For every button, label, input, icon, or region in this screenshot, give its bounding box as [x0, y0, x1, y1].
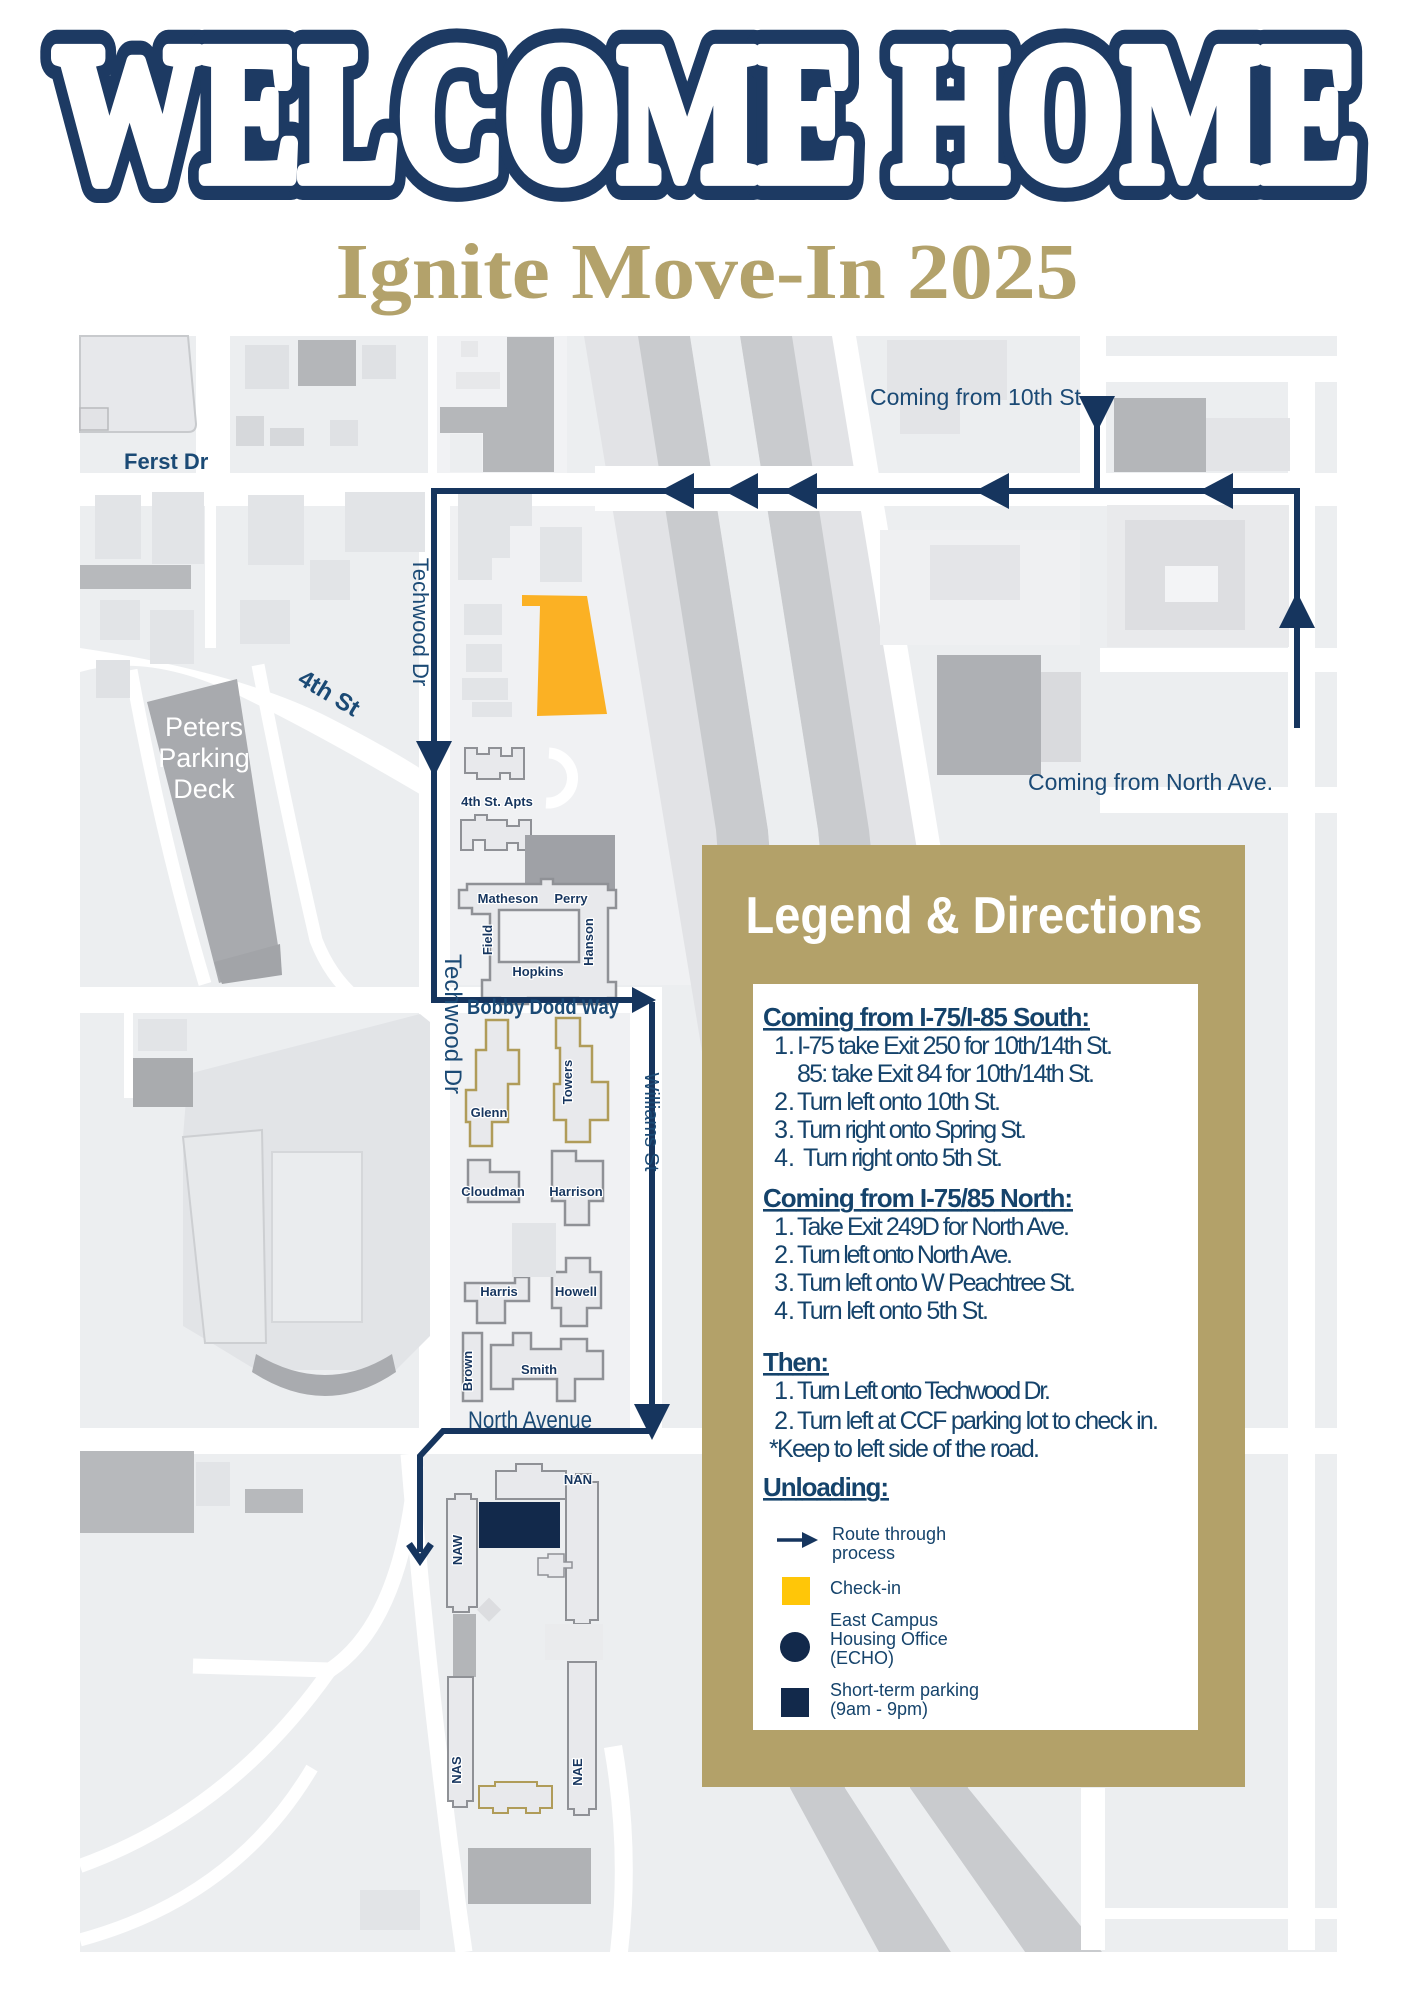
svg-text:NAN: NAN [564, 1472, 592, 1487]
svg-text:1.: 1. [774, 1377, 795, 1405]
svg-text:Turn left onto 10th St.: Turn left onto 10th St. [797, 1088, 1001, 1116]
svg-text:Take Exit 249D for North Ave.: Take Exit 249D for North Ave. [797, 1213, 1070, 1241]
svg-text:Towers: Towers [560, 1060, 575, 1105]
svg-text:Housing Office: Housing Office [830, 1629, 948, 1649]
svg-text:Hanson: Hanson [581, 918, 596, 966]
svg-text:NAE: NAE [570, 1758, 585, 1786]
svg-text:North Avenue: North Avenue [468, 1407, 592, 1434]
svg-text:Legend & Directions: Legend & Directions [746, 887, 1203, 945]
svg-text:Then:: Then: [763, 1347, 829, 1377]
svg-text:Deck: Deck [173, 774, 235, 804]
svg-text:process: process [832, 1543, 895, 1563]
svg-text:Techwood Dr: Techwood Dr [439, 954, 466, 1094]
svg-text:3.: 3. [774, 1116, 795, 1144]
svg-text:NAS: NAS [449, 1756, 464, 1784]
svg-text:Field: Field [480, 925, 495, 955]
svg-text:Coming from I-75/85 North:: Coming from I-75/85 North: [763, 1183, 1073, 1213]
svg-text:4th St. Apts: 4th St. Apts [461, 794, 533, 809]
svg-text:Hopkins: Hopkins [512, 964, 563, 979]
svg-text:NAW: NAW [450, 1534, 465, 1565]
svg-text:Techwood Dr: Techwood Dr [408, 558, 433, 686]
svg-text:(ECHO): (ECHO) [830, 1648, 894, 1668]
svg-text:Route through: Route through [832, 1524, 946, 1544]
svg-text:Parking: Parking [158, 743, 250, 773]
svg-text:WELCOME HOME: WELCOME HOME [55, 5, 1360, 221]
svg-text:Coming from 10th St: Coming from 10th St [870, 384, 1082, 410]
svg-text:Smith: Smith [521, 1362, 557, 1377]
svg-text:Perry: Perry [554, 891, 588, 906]
svg-text:Brown: Brown [460, 1351, 475, 1392]
svg-text:Ignite Move-In 2025: Ignite Move-In 2025 [336, 229, 1079, 316]
svg-text:Turn left at CCF parking lot t: Turn left at CCF parking lot to check in… [797, 1407, 1159, 1435]
svg-text:1.: 1. [774, 1032, 795, 1060]
svg-text:Glenn: Glenn [471, 1105, 508, 1120]
svg-text:Turn left onto W Peachtree St.: Turn left onto W Peachtree St. [797, 1269, 1076, 1297]
svg-text:East Campus: East Campus [830, 1610, 938, 1630]
svg-text:(9am - 9pm): (9am - 9pm) [830, 1699, 928, 1719]
svg-text:Ferst Dr: Ferst Dr [124, 449, 209, 474]
svg-text:85: take Exit 84 for 10th/14th: 85: take Exit 84 for 10th/14th St. [797, 1060, 1095, 1088]
svg-text:Cloudman: Cloudman [461, 1184, 525, 1199]
svg-text:Harris: Harris [480, 1284, 518, 1299]
svg-text:Turn right onto Spring St.: Turn right onto Spring St. [797, 1116, 1027, 1144]
svg-text:Bobby Dodd Way: Bobby Dodd Way [467, 996, 619, 1019]
svg-text:Turn left onto North Ave.: Turn left onto North Ave. [797, 1241, 1013, 1269]
svg-text:*Keep to left side of the road: *Keep to left side of the road. [769, 1435, 1040, 1463]
svg-text:Check-in: Check-in [830, 1578, 901, 1598]
svg-text:Coming from I-75/I-85 South:: Coming from I-75/I-85 South: [763, 1002, 1090, 1032]
svg-text:Matheson: Matheson [478, 891, 539, 906]
svg-text:Harrison: Harrison [549, 1184, 603, 1199]
svg-text:I-75 take Exit 250 for 10th/14: I-75 take Exit 250 for 10th/14th St. [797, 1032, 1113, 1060]
svg-text:Coming from North Ave.: Coming from North Ave. [1028, 769, 1273, 795]
svg-text:Unloading:: Unloading: [763, 1472, 889, 1502]
svg-text:4.: 4. [774, 1144, 795, 1172]
svg-text:Turn right onto 5th St.: Turn right onto 5th St. [803, 1144, 1003, 1172]
svg-text:Howell: Howell [555, 1284, 597, 1299]
svg-text:Peters: Peters [165, 712, 243, 742]
svg-text:1.: 1. [774, 1213, 795, 1241]
svg-text:2.: 2. [774, 1407, 795, 1435]
svg-text:3.: 3. [774, 1269, 795, 1297]
svg-text:2.: 2. [774, 1088, 795, 1116]
svg-text:Short-term parking: Short-term parking [830, 1680, 979, 1700]
svg-text:Turn left onto 5th St.: Turn left onto 5th St. [797, 1297, 989, 1325]
svg-text:2.: 2. [774, 1241, 795, 1269]
svg-text:Williams St: Williams St [640, 1073, 662, 1172]
svg-text:4.: 4. [774, 1297, 795, 1325]
svg-text:Turn Left onto Techwood Dr.: Turn Left onto Techwood Dr. [797, 1377, 1051, 1405]
